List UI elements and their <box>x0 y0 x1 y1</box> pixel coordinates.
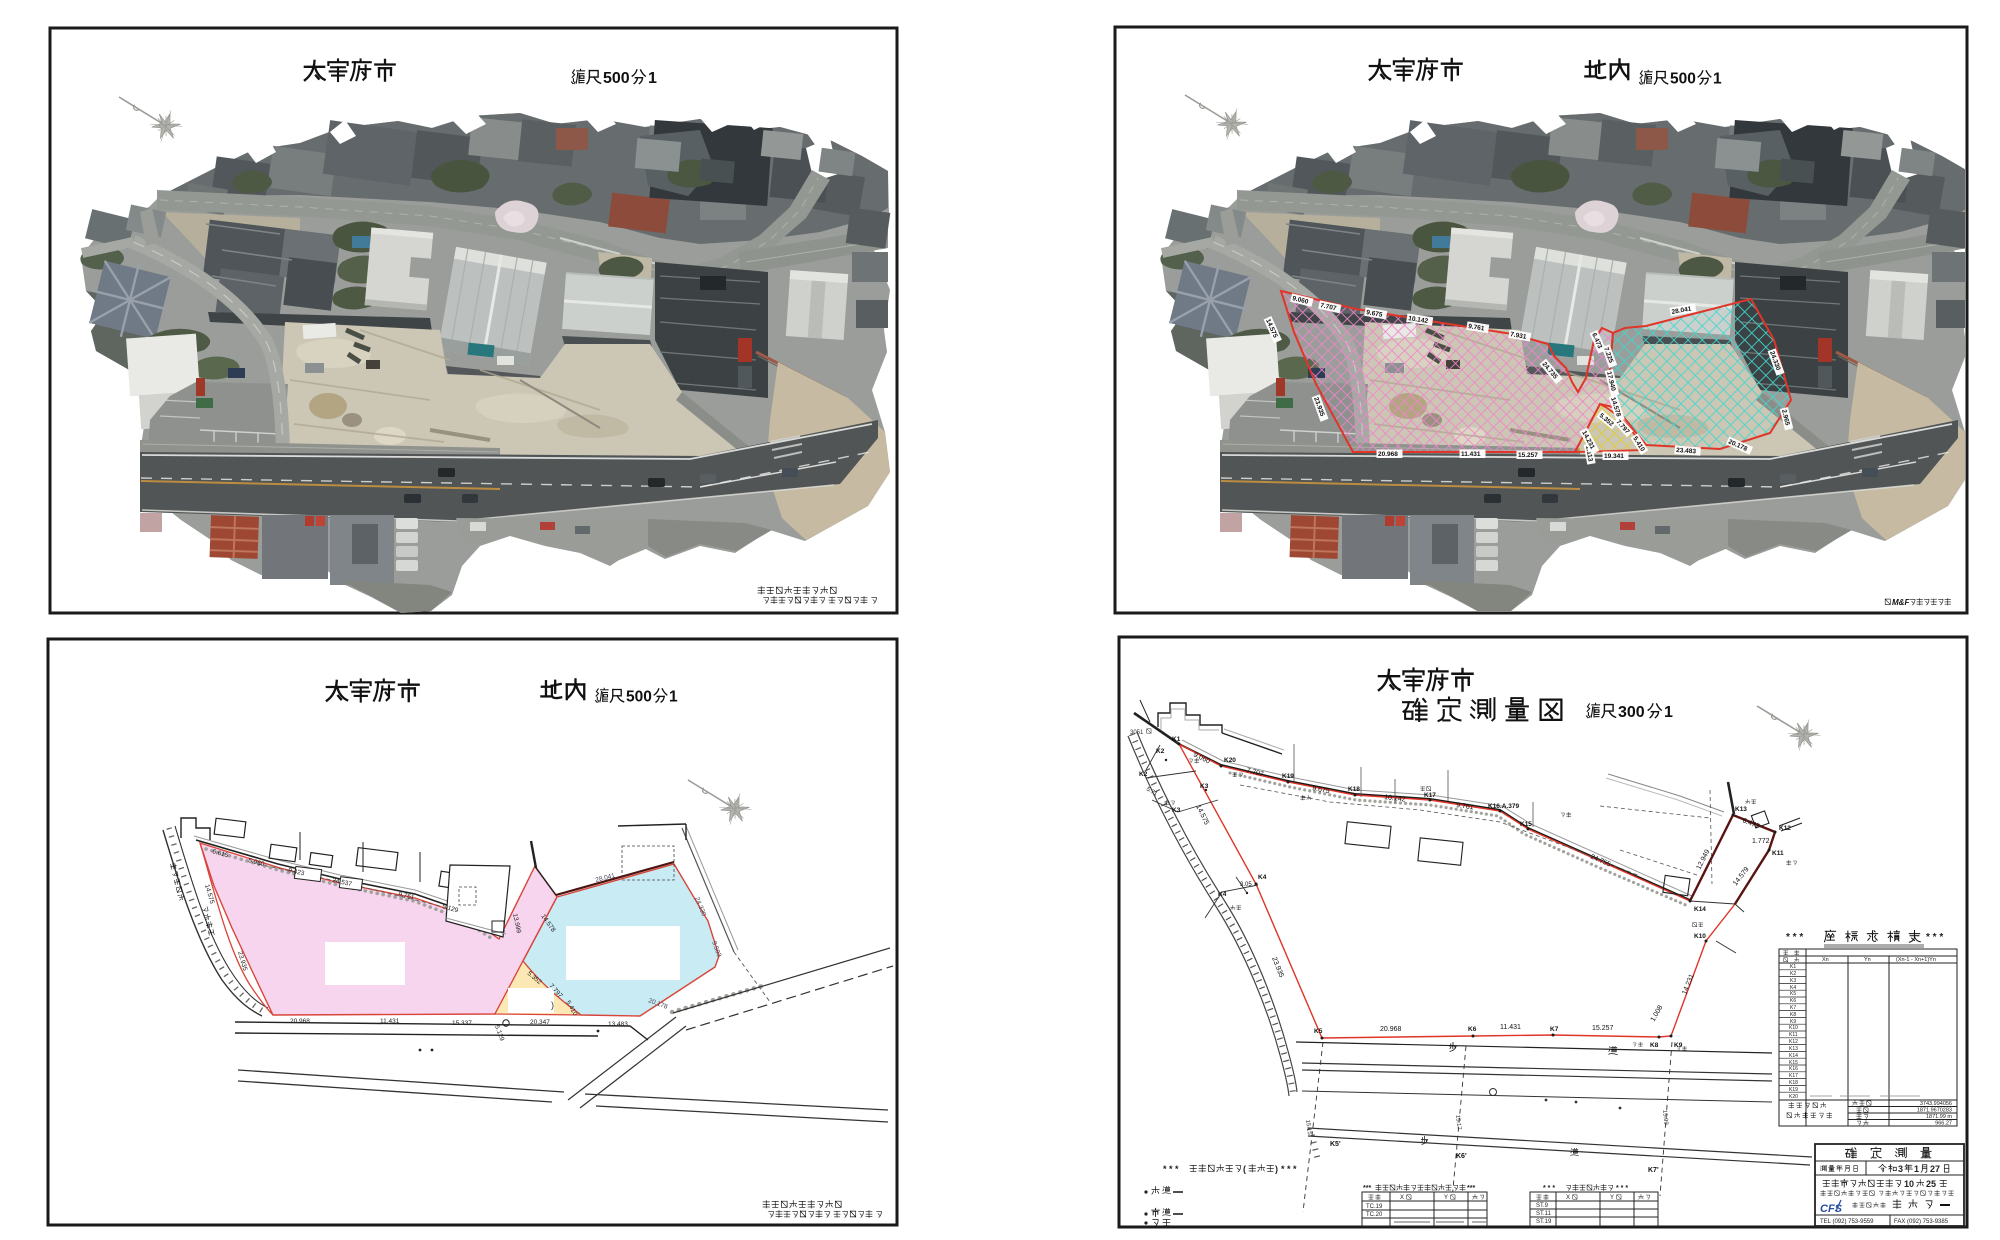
svg-text:K6: K6 <box>1468 1026 1477 1033</box>
svg-text:11.431: 11.431 <box>380 1018 400 1025</box>
svg-text:K14: K14 <box>1789 1053 1798 1059</box>
svg-text:500: 500 <box>626 689 652 706</box>
svg-text:11.431: 11.431 <box>1500 1024 1521 1031</box>
svg-text:K1: K1 <box>1172 736 1181 743</box>
svg-text:***: *** <box>1467 1185 1475 1192</box>
svg-text:FAX (092) 753-9385: FAX (092) 753-9385 <box>1894 1219 1949 1225</box>
svg-text:ST.11: ST.11 <box>1536 1211 1552 1217</box>
svg-text:K18: K18 <box>1348 786 1360 793</box>
svg-text:K18: K18 <box>1789 1080 1798 1086</box>
svg-text:10: 10 <box>1904 1179 1914 1189</box>
svg-text:K19: K19 <box>1282 773 1294 780</box>
svg-text:K6: K6 <box>1790 998 1796 1004</box>
svg-text:Xn: Xn <box>1822 957 1829 963</box>
svg-text:K8: K8 <box>1790 1012 1796 1018</box>
svg-text:* * *: * * * <box>1786 932 1803 943</box>
svg-text:K9: K9 <box>1674 1042 1683 1049</box>
svg-text:K6': K6' <box>1456 1153 1467 1160</box>
svg-text:K3: K3 <box>1172 807 1181 814</box>
svg-text:20.968: 20.968 <box>290 1018 310 1025</box>
svg-text:K4: K4 <box>1218 891 1227 898</box>
svg-text:K17: K17 <box>1424 792 1436 799</box>
svg-text:K5': K5' <box>1330 1141 1341 1148</box>
svg-text:): ) <box>1275 1164 1278 1174</box>
svg-text:1: 1 <box>648 70 657 87</box>
svg-text:1871.99 m: 1871.99 m <box>1926 1114 1952 1120</box>
svg-text:1: 1 <box>669 689 678 706</box>
svg-text:300: 300 <box>1618 704 1645 721</box>
svg-text:K13: K13 <box>1735 806 1747 813</box>
svg-text:(Xn-1 - Xn+1)Yn: (Xn-1 - Xn+1)Yn <box>1896 957 1936 963</box>
svg-text:500: 500 <box>1670 71 1696 88</box>
svg-text:K4: K4 <box>1258 874 1267 881</box>
svg-text:20.347: 20.347 <box>530 1019 550 1026</box>
svg-text:K12: K12 <box>1779 825 1791 832</box>
svg-text:K7: K7 <box>1790 1005 1796 1011</box>
svg-text:Y: Y <box>1444 1195 1448 1201</box>
svg-text:K14: K14 <box>1694 906 1706 913</box>
svg-text:K20: K20 <box>1789 1094 1798 1100</box>
svg-text:1.772: 1.772 <box>1752 838 1770 845</box>
svg-text:1: 1 <box>1713 71 1722 88</box>
svg-text:K1: K1 <box>1790 964 1796 970</box>
svg-text:23.483: 23.483 <box>1676 447 1697 455</box>
svg-text:M&F: M&F <box>1892 598 1910 607</box>
svg-text:1: 1 <box>1664 704 1673 721</box>
svg-text:Yn: Yn <box>1864 957 1871 963</box>
svg-text:K3: K3 <box>1790 978 1796 984</box>
svg-text:K10: K10 <box>1694 933 1706 940</box>
svg-text:19.341: 19.341 <box>1604 453 1624 460</box>
svg-text:3.05: 3.05 <box>1240 882 1252 888</box>
svg-text:* * *: * * * <box>1616 1185 1628 1192</box>
svg-text:15.257: 15.257 <box>1592 1025 1614 1032</box>
svg-text:K13: K13 <box>1789 1046 1798 1052</box>
svg-text:20.968: 20.968 <box>1380 1026 1402 1033</box>
svg-text:X: X <box>1566 1195 1570 1201</box>
svg-text:* * *: * * * <box>1543 1185 1555 1192</box>
svg-text:* * *: * * * <box>1281 1164 1297 1174</box>
svg-text:K11: K11 <box>1789 1032 1798 1038</box>
svg-text:K5: K5 <box>1314 1028 1323 1035</box>
svg-text:3743.994056: 3743.994056 <box>1920 1101 1952 1107</box>
svg-text:500: 500 <box>603 70 630 87</box>
svg-text:25: 25 <box>1926 1179 1936 1189</box>
svg-text:966.27: 966.27 <box>1935 1121 1952 1127</box>
svg-text:TC.20: TC.20 <box>1366 1212 1383 1218</box>
svg-text:K2: K2 <box>1156 748 1165 755</box>
svg-text:3: 3 <box>1898 1164 1903 1174</box>
svg-text:K15: K15 <box>1520 821 1532 828</box>
svg-text:K16.A.379: K16.A.379 <box>1488 803 1519 810</box>
svg-text:K20: K20 <box>1224 757 1236 764</box>
svg-text:13.483: 13.483 <box>608 1021 628 1028</box>
svg-text:11.431: 11.431 <box>1461 451 1481 458</box>
svg-text:TEL (092) 753-9559: TEL (092) 753-9559 <box>1820 1219 1874 1225</box>
svg-text:X: X <box>1400 1195 1404 1201</box>
svg-text:K7': K7' <box>1648 1167 1659 1174</box>
svg-text:K16: K16 <box>1789 1066 1798 1072</box>
svg-text:TC.19: TC.19 <box>1366 1204 1383 1210</box>
svg-text:K12: K12 <box>1789 1039 1798 1045</box>
svg-text:K2: K2 <box>1139 771 1148 778</box>
svg-text:15.257: 15.257 <box>1518 452 1538 459</box>
svg-text:K19: K19 <box>1789 1087 1798 1093</box>
svg-text:* * *: * * * <box>1926 932 1943 943</box>
svg-text:Y: Y <box>1610 1195 1614 1201</box>
svg-text:K7: K7 <box>1550 1026 1559 1033</box>
svg-text:3051: 3051 <box>1130 730 1144 736</box>
svg-text:20.968: 20.968 <box>1378 451 1398 458</box>
svg-text:* * *: * * * <box>1163 1164 1179 1174</box>
svg-text:K3: K3 <box>1200 783 1209 790</box>
svg-text:): ) <box>551 1000 554 1010</box>
svg-text:ST.9: ST.9 <box>1536 1203 1549 1209</box>
svg-text:K17: K17 <box>1789 1073 1798 1079</box>
svg-text:K8: K8 <box>1650 1042 1659 1049</box>
svg-text:ST.19: ST.19 <box>1536 1219 1552 1225</box>
svg-text:1871.9670283: 1871.9670283 <box>1917 1108 1952 1114</box>
svg-text:27: 27 <box>1930 1164 1940 1174</box>
svg-text:***: *** <box>1363 1185 1371 1192</box>
svg-text:K10: K10 <box>1789 1025 1798 1031</box>
svg-text:1: 1 <box>1914 1164 1919 1174</box>
svg-text:15.337: 15.337 <box>452 1020 472 1027</box>
svg-text:K11: K11 <box>1772 850 1784 857</box>
svg-text:K2: K2 <box>1790 971 1796 977</box>
svg-text:(: ( <box>1243 1164 1246 1174</box>
svg-text:K5: K5 <box>1790 991 1796 997</box>
